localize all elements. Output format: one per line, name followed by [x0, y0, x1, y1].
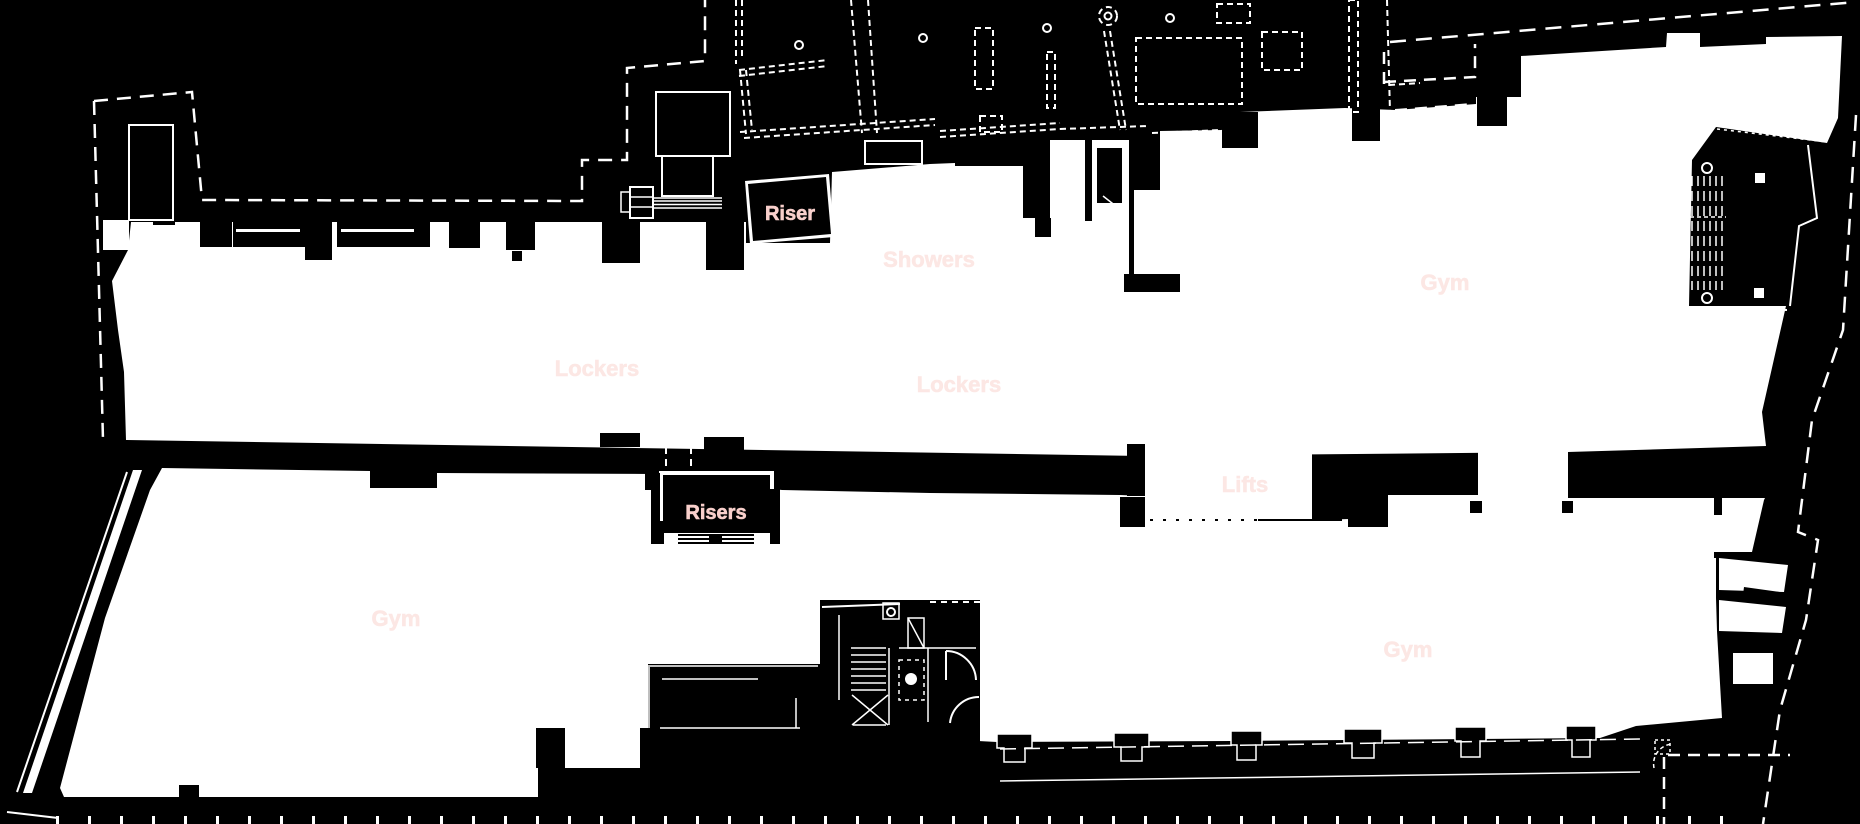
svg-text:Gym: Gym	[372, 606, 421, 631]
svg-text:Showers: Showers	[883, 247, 975, 272]
svg-text:Lockers: Lockers	[555, 356, 639, 381]
svg-text:Gym: Gym	[1421, 270, 1470, 295]
svg-text:Lifts: Lifts	[1222, 472, 1268, 497]
svg-text:Gym: Gym	[1384, 637, 1433, 662]
svg-text:Riser: Riser	[765, 203, 815, 225]
svg-text:Lockers: Lockers	[917, 372, 1001, 397]
svg-text:Risers: Risers	[685, 502, 746, 524]
